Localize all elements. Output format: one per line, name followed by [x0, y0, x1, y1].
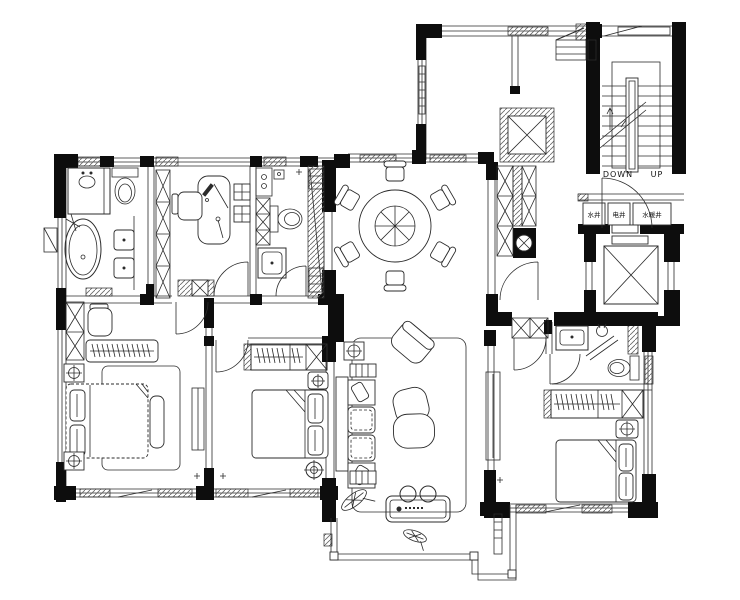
- corner-cabinet: [66, 302, 84, 360]
- foyer-cabinets: [497, 166, 536, 256]
- study: [156, 169, 302, 298]
- ensuite-bathroom: [556, 324, 639, 380]
- third-bedroom-door: [514, 338, 546, 370]
- study-door: [214, 262, 248, 296]
- sink-basin: [597, 326, 608, 337]
- dining-chair: [428, 239, 456, 268]
- entry-door: [500, 262, 538, 300]
- dining-chair: [333, 184, 361, 213]
- staircase: DOWN UP: [600, 62, 672, 179]
- lobby: [419, 28, 596, 114]
- armchair: [388, 319, 436, 366]
- stairs-down-label: DOWN: [603, 170, 633, 179]
- toilet-bowl: [608, 360, 630, 377]
- lounge-chair: [381, 384, 442, 457]
- stairs-up-label: UP: [651, 170, 664, 179]
- lobby-closet: [556, 40, 586, 60]
- pillow: [308, 394, 323, 423]
- dining-set: [333, 161, 457, 291]
- sink-basin: [79, 176, 95, 188]
- toilet-tank: [270, 206, 278, 232]
- desk-chair-back: [172, 194, 178, 214]
- master-bedroom-door: [176, 302, 208, 334]
- plant: [338, 485, 375, 520]
- elevator-lobby: [500, 108, 554, 162]
- pillow: [70, 425, 85, 456]
- tub-faucet: [66, 214, 80, 231]
- elevator-main: [604, 236, 658, 304]
- dining-chair: [428, 184, 456, 213]
- pillow: [308, 426, 323, 455]
- sofa-back: [336, 377, 348, 471]
- second-bedroom: [251, 344, 328, 497]
- second-bathroom: [256, 166, 324, 298]
- pillow: [70, 390, 85, 421]
- toilet-bowl: [115, 178, 135, 204]
- living-room: [336, 319, 466, 522]
- toilet-tank: [630, 356, 639, 380]
- bathroom-door: [276, 266, 306, 296]
- shower-screen: [586, 336, 618, 360]
- bed-bench: [150, 396, 164, 448]
- bedroom-chair: [88, 308, 112, 336]
- ensuite-door: [550, 354, 580, 384]
- desk-chair: [178, 192, 202, 220]
- end-table: [350, 471, 376, 484]
- third-bedroom: [486, 318, 643, 512]
- toilet-tank: [112, 168, 138, 177]
- toilet-bowl: [278, 209, 302, 229]
- electric-shaft-label: 电井: [613, 210, 627, 219]
- end-table: [350, 364, 376, 377]
- desk: [198, 176, 230, 244]
- master-bedroom: [64, 302, 226, 497]
- dining-chair: [333, 239, 361, 268]
- floor-plan-drawing: DOWN UP 水井 电井 水暖井: [0, 0, 740, 600]
- plant: [400, 527, 429, 551]
- water-shaft-label: 水井: [588, 210, 602, 219]
- floor-plan: DOWN UP 水井 电井 水暖井: [0, 0, 740, 600]
- bathtub: [65, 219, 101, 279]
- dining-chair: [384, 161, 406, 181]
- washstand: [256, 168, 272, 196]
- dining-chair: [384, 271, 406, 291]
- plumbing-shaft-label: 水暖井: [642, 210, 662, 219]
- second-bedroom-door: [216, 340, 248, 372]
